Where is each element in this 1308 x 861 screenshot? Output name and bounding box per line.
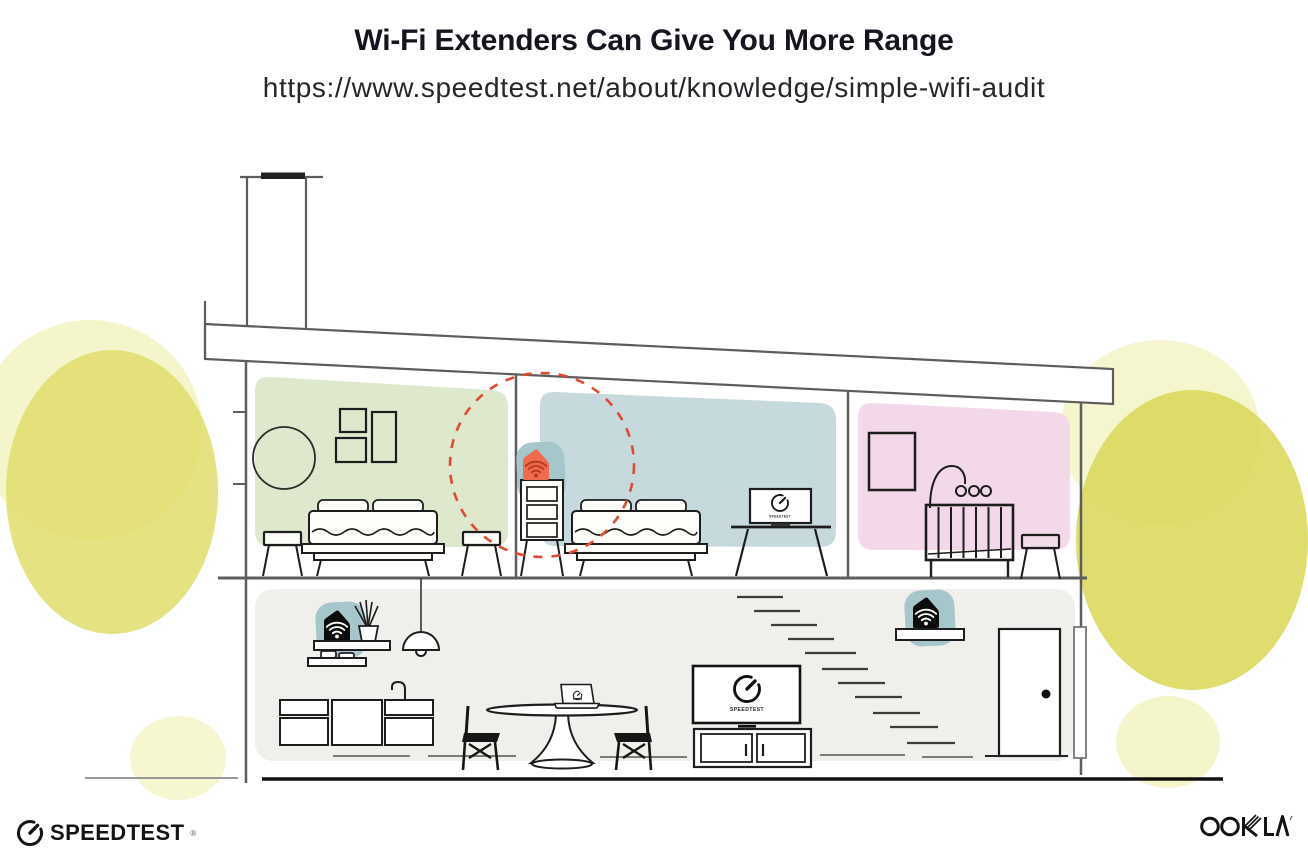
tv-screen-label: SPEEDTEST bbox=[730, 707, 764, 713]
nightstand bbox=[263, 532, 302, 576]
shelf-upper bbox=[314, 641, 390, 650]
bed-left-bedroom bbox=[302, 500, 444, 576]
chimney bbox=[240, 173, 323, 331]
tv-console bbox=[694, 729, 811, 767]
house-illustration: SPEEDTEST bbox=[0, 0, 1308, 861]
shelf bbox=[896, 629, 964, 640]
tv-screen-label: SPEEDTEST bbox=[769, 515, 791, 519]
wall-pillar bbox=[1074, 627, 1086, 758]
foliage-left bbox=[0, 320, 226, 800]
ookla-wordmark bbox=[1200, 813, 1296, 840]
registered-mark: ® bbox=[190, 829, 196, 838]
speedtest-gauge-icon bbox=[16, 819, 44, 847]
tv-living: SPEEDTEST bbox=[693, 666, 800, 728]
speedtest-logo: SPEEDTEST® bbox=[16, 819, 196, 847]
speedtest-wordmark: SPEEDTEST bbox=[50, 820, 184, 846]
laptop-label-bar bbox=[573, 698, 582, 700]
nightstand bbox=[462, 532, 501, 576]
dresser bbox=[521, 480, 563, 576]
foliage-right bbox=[1060, 340, 1308, 788]
nursery-stool bbox=[1021, 535, 1060, 579]
ookla-logo bbox=[1200, 813, 1296, 845]
chimney-cap bbox=[261, 173, 305, 180]
bed-middle-bedroom bbox=[565, 500, 707, 576]
door-knob bbox=[1042, 690, 1051, 699]
